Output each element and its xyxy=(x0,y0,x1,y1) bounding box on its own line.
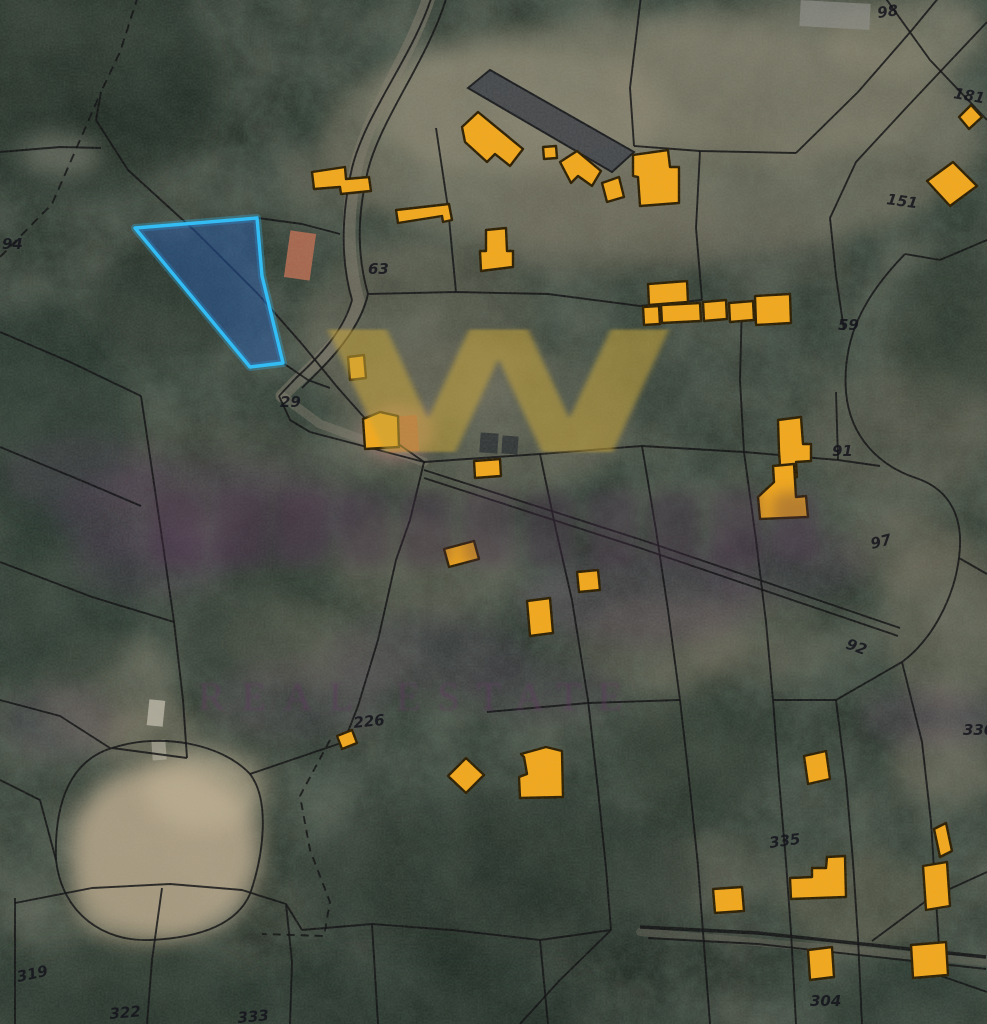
watermark-brand-word-blurred xyxy=(772,492,818,562)
parcel-number-label: 63 xyxy=(368,260,389,278)
parcel-number-label: 226 xyxy=(353,711,386,732)
watermark-brand-word-blurred xyxy=(462,490,514,566)
watermark-brand-word-blurred xyxy=(338,490,390,566)
parcel-number-label: 304 xyxy=(810,992,841,1010)
parcel-number-label: 94 xyxy=(2,235,23,253)
watermark-brand-word-blurred xyxy=(648,492,700,566)
watermark-monogram: W xyxy=(318,296,679,492)
map-overlay: W REAL ESTATE 94981811515963299197923302… xyxy=(0,0,987,1024)
parcel-number-label: 91 xyxy=(832,442,853,460)
parcel-number-label: 330 xyxy=(963,721,987,739)
parcel-number-label: 333 xyxy=(237,1006,270,1024)
watermark-brand-word-blurred xyxy=(152,492,204,566)
watermark-brand-word-blurred xyxy=(276,492,328,566)
watermark-brand-word-blurred xyxy=(710,490,762,566)
parcel-number-label: 98 xyxy=(876,1,899,22)
watermark-brand-word-blurred xyxy=(214,490,266,566)
watermark-brand-word-blurred xyxy=(524,492,576,566)
parcel-number-label: 29 xyxy=(280,393,301,411)
parcel-number-label: 322 xyxy=(109,1002,142,1023)
satellite-map-canvas[interactable]: W REAL ESTATE 94981811515963299197923302… xyxy=(0,0,987,1024)
watermark-brand-word-blurred xyxy=(586,490,638,566)
watermark-brand-word-blurred xyxy=(400,492,452,566)
watermark-subtitle: REAL ESTATE xyxy=(198,674,639,719)
parcel-number-label: 59 xyxy=(838,316,859,334)
